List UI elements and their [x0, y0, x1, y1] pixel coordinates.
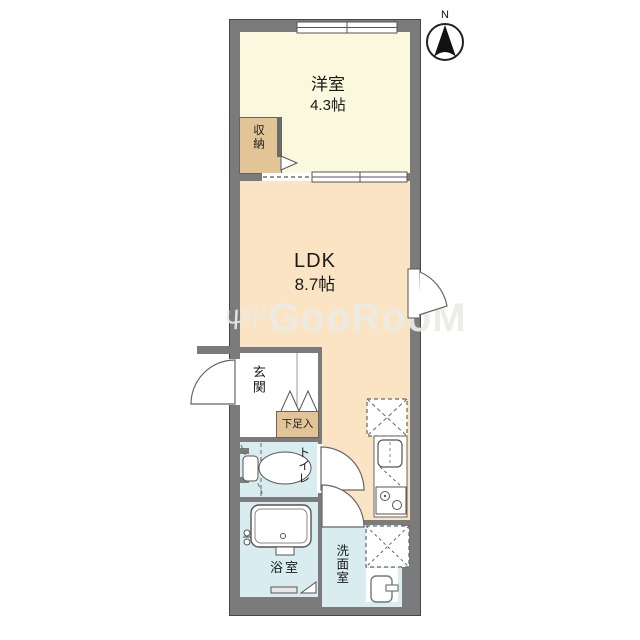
storage-label: 収納	[250, 124, 265, 151]
refrigerator-space	[367, 399, 407, 436]
washroom-door	[322, 485, 364, 527]
closet-fold-doors	[281, 353, 317, 411]
entrance-door	[191, 359, 240, 405]
stove	[376, 487, 406, 514]
bath-door-marker	[301, 582, 316, 593]
ldk-name: LDK	[265, 248, 365, 274]
bathroom-label: 浴室	[252, 560, 318, 577]
washbasin	[371, 576, 398, 602]
balcony-door	[408, 269, 447, 318]
bath-threshold	[271, 587, 297, 593]
toilet-label: トイレ	[295, 446, 311, 485]
partition-opening-dashed	[262, 173, 312, 181]
western-room-name: 洋室	[278, 74, 378, 96]
sliding-door-western-ldk	[312, 172, 407, 182]
western-room-size: 4.3帖	[278, 96, 378, 116]
washroom-label: 洗面室	[333, 544, 349, 585]
entrance-label: 玄関	[249, 365, 266, 395]
floorplan-canvas: ΨΨ GooRooM	[0, 0, 640, 640]
ldk-size: 8.7帖	[265, 274, 365, 296]
storage-door-marker	[281, 156, 297, 170]
bath-step	[276, 547, 294, 555]
storage-wall	[277, 118, 281, 157]
shoe-cabinet-label: 下足入	[277, 418, 318, 432]
compass-icon	[427, 24, 463, 60]
window-top	[297, 22, 397, 33]
compass-north-label: N	[436, 8, 454, 22]
ldk-label: LDK 8.7帖	[265, 248, 365, 296]
bathtub	[243, 505, 311, 547]
washing-machine-space	[366, 526, 409, 567]
toilet-door	[321, 447, 364, 490]
western-room-label: 洋室 4.3帖	[278, 74, 378, 116]
